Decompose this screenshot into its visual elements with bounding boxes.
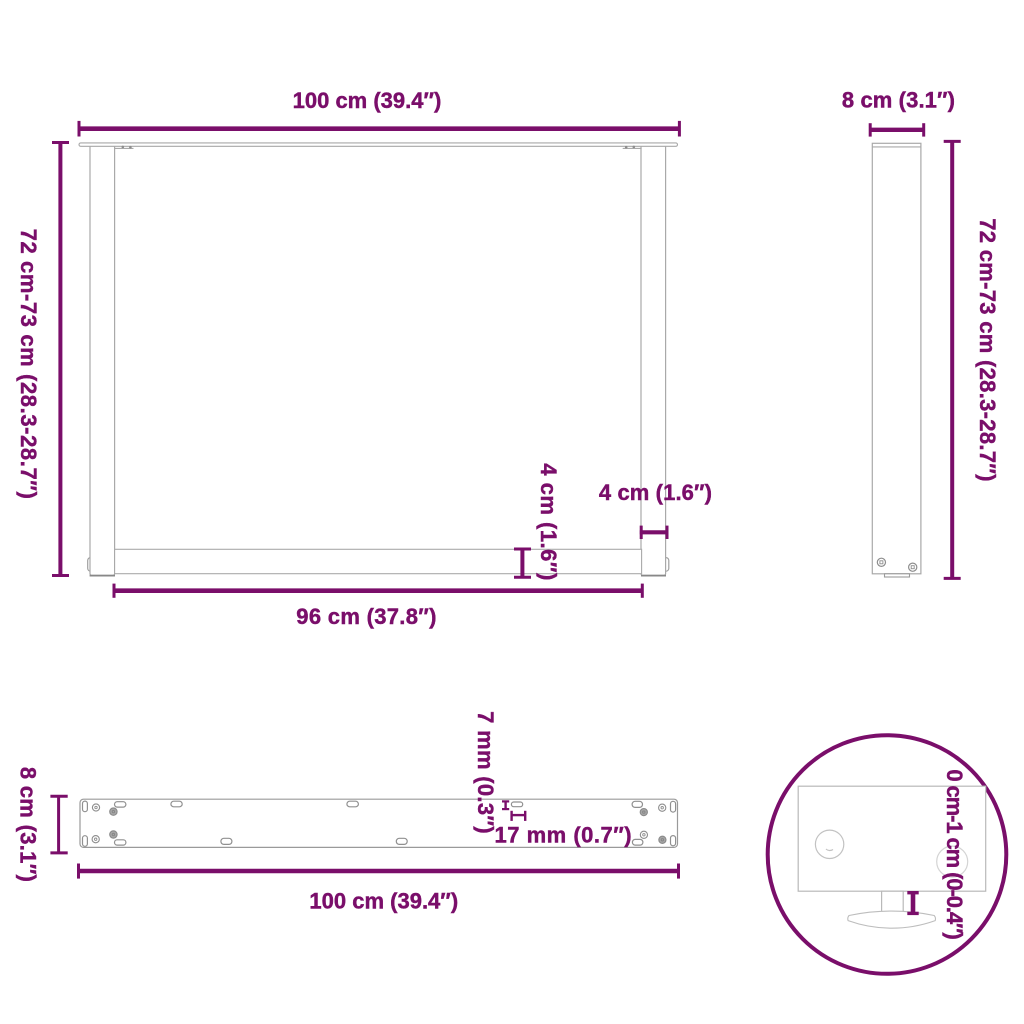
svg-text:7 mm (0.3″): 7 mm (0.3″) bbox=[473, 711, 498, 834]
svg-text:0 cm-1 cm (0-0.4″): 0 cm-1 cm (0-0.4″) bbox=[942, 769, 967, 939]
svg-text:96 cm (37.8″): 96 cm (37.8″) bbox=[296, 604, 436, 629]
svg-text:72 cm-73 cm (28.3-28.7″): 72 cm-73 cm (28.3-28.7″) bbox=[975, 218, 1000, 482]
svg-text:100 cm (39.4″): 100 cm (39.4″) bbox=[293, 88, 442, 113]
svg-text:72 cm-73 cm (28.3-28.7″): 72 cm-73 cm (28.3-28.7″) bbox=[16, 229, 41, 500]
svg-text:8 cm (3.1″): 8 cm (3.1″) bbox=[842, 88, 955, 113]
svg-text:4 cm (1.6″): 4 cm (1.6″) bbox=[536, 463, 561, 581]
svg-text:4 cm (1.6″): 4 cm (1.6″) bbox=[599, 480, 712, 505]
svg-text:17 mm (0.7″): 17 mm (0.7″) bbox=[495, 823, 633, 848]
svg-text:100 cm (39.4″): 100 cm (39.4″) bbox=[309, 889, 458, 914]
svg-text:8 cm (3.1″): 8 cm (3.1″) bbox=[16, 767, 41, 882]
